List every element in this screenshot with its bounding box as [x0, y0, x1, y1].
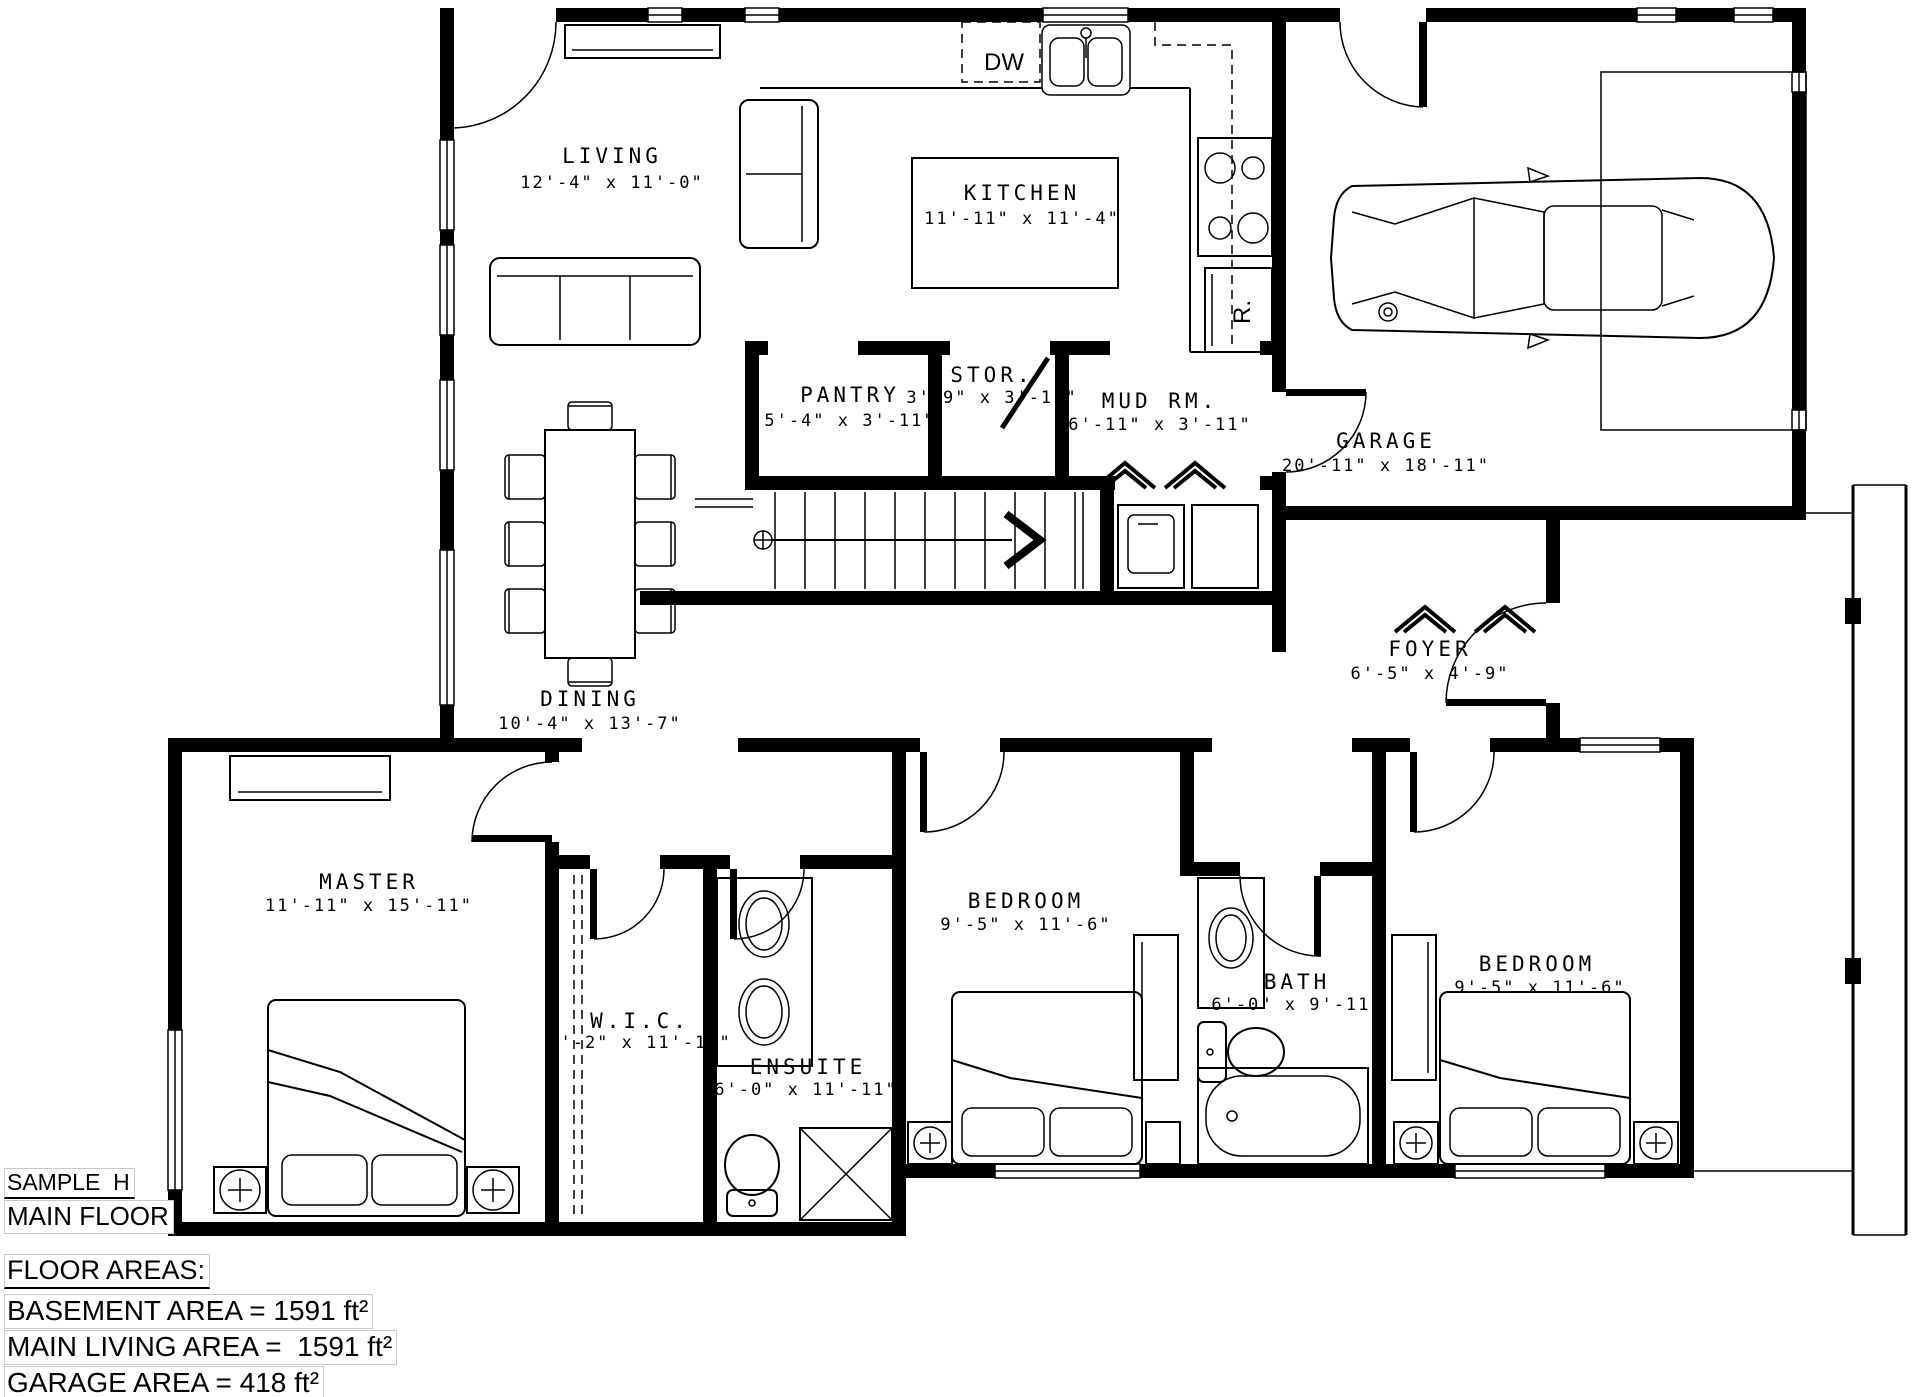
- room-dims-mudroom: 6'-11" x 3'-11": [1068, 415, 1252, 435]
- garage-area: GARAGE AREA = 418 ft²: [4, 1366, 324, 1397]
- nightstand: [467, 1167, 519, 1213]
- room-label-kitchen: KITCHEN: [964, 181, 1081, 205]
- window-dining-2: [440, 550, 454, 705]
- side-deck: [1694, 485, 1906, 1235]
- main-living-area: MAIN LIVING AREA = 1591 ft²: [4, 1330, 397, 1365]
- kitchen-sink: [1042, 25, 1130, 95]
- basement-area: BASEMENT AREA = 1591 ft²: [4, 1294, 373, 1329]
- nightstand: [908, 1122, 952, 1164]
- room-dims-master: 11'-11" x 15'-11": [265, 896, 473, 916]
- bath-vanity: [1198, 878, 1264, 1008]
- bedroom2-door: [920, 738, 1004, 832]
- refrigerator: R.: [1205, 268, 1272, 352]
- master-dresser: [230, 756, 390, 800]
- room-dims-ensuite: 6'-0" x 11'-11": [714, 1080, 898, 1100]
- title-block: SAMPLE H: [4, 1168, 135, 1199]
- garage-man-door: [1340, 8, 1427, 107]
- room-label-storage: STOR.: [950, 363, 1033, 387]
- nightstand: [1634, 1122, 1678, 1164]
- master-bed: [268, 1000, 465, 1216]
- window-bedroom2: [995, 1164, 1140, 1178]
- armchair: [740, 100, 818, 248]
- window-dining-1: [440, 380, 454, 470]
- window: [648, 8, 682, 22]
- room-dims-bedroom3: 9'-5" x 11'-6": [1454, 978, 1625, 998]
- plan-title: SAMPLE H: [4, 1168, 135, 1199]
- window: [1637, 8, 1676, 22]
- room-label-wic: W.I.C.: [590, 1009, 690, 1033]
- room-dims-foyer: 6'-5" x 4'-9": [1350, 664, 1509, 684]
- bedroom2-dresser: [1134, 935, 1178, 1080]
- dining-chairs: [505, 402, 675, 686]
- sofa: [490, 258, 700, 345]
- room-label-garage: GARAGE: [1336, 429, 1436, 453]
- room-dims-kitchen: 11'-11" x 11'-4": [924, 209, 1120, 229]
- window-garage-1: [1792, 72, 1806, 92]
- bedroom2-bed: [952, 992, 1142, 1164]
- garage-door: [1601, 72, 1806, 430]
- bath-fixtures: [1198, 878, 1368, 1164]
- ensuite-toilet: [725, 1135, 779, 1216]
- room-dims-wic: 5'-2" x 11'-11": [548, 1033, 732, 1053]
- room-label-bath: BATH: [1264, 970, 1331, 994]
- room-dims-garage: 20'-11" x 18'-11": [1282, 456, 1490, 476]
- window-living-2: [440, 245, 454, 335]
- room-dims-living: 12'-4" x 11'-0": [520, 173, 704, 193]
- room-dims-dining: 10'-4" x 13'-7": [498, 714, 682, 734]
- nightstand: [214, 1167, 266, 1213]
- bath-toilet: [1198, 1022, 1284, 1082]
- room-dims-storage: 3'-9" x 3'-11": [906, 388, 1077, 408]
- room-dims-pantry: 5'-4" x 3'-11": [764, 411, 935, 431]
- window-bedroom3: [1455, 1164, 1605, 1178]
- room-label-living: LIVING: [562, 144, 662, 168]
- ensuite-door: [730, 855, 804, 939]
- room-label-bedroom2: BEDROOM: [968, 889, 1085, 913]
- range: [1198, 138, 1272, 256]
- bedroom2-furniture: [908, 935, 1180, 1164]
- floor-plan-drawing: DW R.: [0, 0, 1920, 1397]
- wic-door: [590, 855, 664, 939]
- dryer: [1192, 505, 1258, 588]
- dining-table: [545, 430, 635, 658]
- nightstand: [1394, 1122, 1438, 1164]
- garage-contents: [1331, 72, 1806, 430]
- window: [745, 8, 779, 22]
- patio-door: [447, 8, 556, 128]
- room-label-mudroom: MUD RM.: [1102, 389, 1219, 413]
- refrigerator-label: R.: [1229, 300, 1256, 324]
- room-label-pantry: PANTRY: [800, 383, 900, 407]
- stairs: [695, 492, 1083, 589]
- room-dims-bath: 6'-0" x 9'-11": [1211, 995, 1382, 1015]
- shower: [800, 1128, 892, 1220]
- room-label-master: MASTER: [319, 870, 419, 894]
- dishwasher: DW: [962, 22, 1040, 82]
- bedroom3-door: [1410, 738, 1494, 832]
- window-kitchen-sink: [1043, 8, 1128, 22]
- bathtub: [1198, 1068, 1368, 1164]
- nightstand: [1146, 1122, 1180, 1164]
- room-label-ensuite: ENSUITE: [750, 1055, 867, 1079]
- media-console: [565, 25, 720, 58]
- master-door: [472, 762, 559, 842]
- dishwasher-label: DW: [984, 49, 1024, 76]
- window-living-1: [440, 140, 454, 230]
- laundry: [1114, 505, 1262, 592]
- room-label-bedroom3: BEDROOM: [1479, 952, 1596, 976]
- dining-furniture: [505, 402, 675, 686]
- window-garage-2: [1792, 410, 1806, 430]
- room-label-foyer: FOYER: [1388, 637, 1471, 661]
- floor-plan-page: DW R.: [0, 0, 1920, 1397]
- floor-areas-heading: FLOOR AREAS:: [4, 1254, 210, 1289]
- bedroom3-dresser: [1392, 935, 1436, 1080]
- room-label-dining: DINING: [540, 687, 640, 711]
- window-master: [168, 1030, 182, 1190]
- washer: [1118, 505, 1184, 588]
- room-dims-bedroom2: 9'-5" x 11'-6": [940, 915, 1111, 935]
- coat-hooks-foyer: [1395, 607, 1535, 632]
- bedroom3-bed: [1440, 992, 1630, 1164]
- window: [1734, 8, 1773, 22]
- ensuite-fixtures: [717, 878, 892, 1220]
- stairs-direction-arrow: [754, 514, 1040, 566]
- floor-name: MAIN FLOOR: [4, 1200, 174, 1234]
- car: [1331, 168, 1774, 348]
- window-hall: [1580, 738, 1660, 752]
